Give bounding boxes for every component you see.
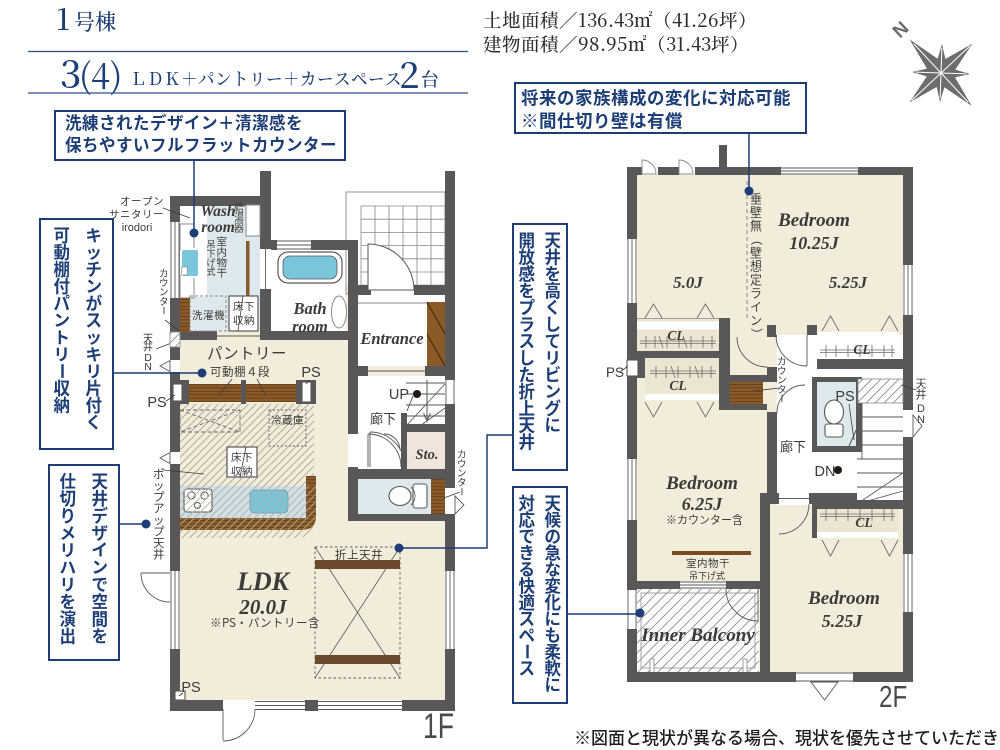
svg-text:DN: DN (815, 464, 836, 480)
svg-text:20.0J: 20.0J (238, 595, 288, 619)
svg-text:Sto.: Sto. (416, 447, 439, 463)
svg-text:irodori: irodori (122, 222, 153, 234)
svg-text:1F: 1F (423, 706, 454, 745)
svg-text:6.25J: 6.25J (682, 494, 724, 514)
svg-text:10.25J: 10.25J (789, 233, 840, 253)
svg-text:PS: PS (301, 365, 320, 381)
svg-text:CL: CL (855, 515, 872, 530)
svg-text:PS: PS (181, 680, 200, 696)
svg-text:N: N (917, 414, 925, 426)
svg-text:room: room (201, 219, 235, 236)
svg-text:CL: CL (853, 342, 870, 357)
svg-text:PS: PS (606, 365, 624, 380)
svg-text:CL: CL (667, 328, 684, 343)
svg-text:Wash: Wash (200, 203, 235, 220)
svg-text:Bedroom: Bedroom (665, 473, 738, 494)
svg-text:2F: 2F (879, 679, 907, 714)
svg-text:room: room (292, 317, 328, 336)
svg-text:Entrance: Entrance (359, 329, 423, 348)
svg-text:Inner Balcony: Inner Balcony (640, 625, 755, 646)
svg-text:UP: UP (389, 387, 409, 403)
svg-text:PS: PS (147, 395, 166, 411)
svg-text:Bath: Bath (292, 299, 326, 318)
svg-text:LDK: LDK (236, 567, 291, 596)
svg-text:Bedroom: Bedroom (807, 588, 880, 609)
svg-text:5.25J: 5.25J (822, 611, 864, 631)
svg-text:Bedroom: Bedroom (777, 210, 850, 231)
svg-text:5.0J: 5.0J (673, 273, 703, 292)
svg-text:5.25J: 5.25J (829, 273, 868, 292)
svg-text:N: N (144, 361, 152, 373)
svg-text:PS: PS (835, 389, 854, 405)
svg-text:CL: CL (669, 378, 686, 393)
